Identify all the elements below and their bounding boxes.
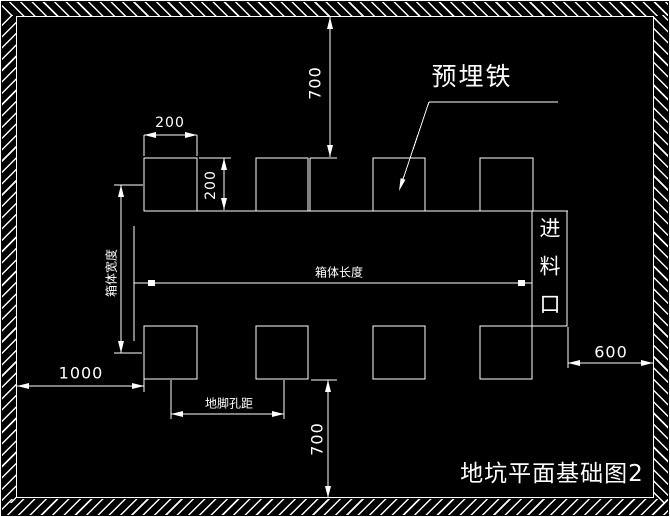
callout-embedded-iron: 预埋铁 [431,57,512,93]
foundation-pad [256,326,308,379]
dim-arrow-up [118,185,124,197]
foundation-pad [256,158,308,211]
foundation-pad [373,326,425,379]
dim-arrow-down [325,486,331,498]
foundation-pad [480,158,533,211]
dim-arrow-up [325,380,331,392]
dim-text-right-clearance: 600 [594,343,628,362]
foundation-pad [144,158,197,211]
dim-arrow-left [171,411,183,417]
dim-box-terminator [148,280,155,286]
dim-arrow-up [327,17,333,29]
dim-text-box-length: 箱体长度 [315,264,363,281]
drawing-title: 地坑平面基础图2 [460,454,644,488]
dim-arrow-up [221,158,227,170]
dim-text-box-width: 箱体宽度 [103,249,120,297]
dim-text-anchor-spacing: 地脚孔距 [205,395,253,412]
dim-arrow-right [185,132,197,138]
dim-arrow-down [118,341,124,353]
dim-arrow-right [641,360,653,366]
leader-arrowhead [399,178,405,191]
callout-leader [399,102,558,191]
drawing-geometry [1,1,670,517]
foundation-pad [480,326,532,379]
dim-arrow-down [327,145,333,157]
dim-pad-width [144,132,197,156]
feed-inlet-label: 进料口 [538,217,559,331]
foundation-pads-bottom-row [144,326,532,379]
dim-arrow-left [144,132,156,138]
dim-arrow-right [132,383,144,389]
foundation-pad [373,158,425,211]
dim-arrow-right [272,411,284,417]
foundation-pad [144,326,197,379]
cad-foundation-drawing: 200 200 700 700 1000 600 箱体长度 箱体宽度 地脚孔距 … [0,0,670,517]
dim-arrow-down [221,198,227,210]
dim-arrow-left [17,383,29,389]
dim-arrow-left [568,360,580,366]
dim-text-top-clearance: 700 [306,66,325,100]
dim-top-clearance [310,17,337,211]
dim-box-length [134,226,532,341]
dim-text-pad-height: 200 [203,170,219,200]
dim-text-pad-width: 200 [155,115,185,131]
dim-box-terminator [518,280,525,286]
dim-text-left-clearance: 1000 [59,364,104,383]
dim-text-bottom-clearance: 700 [308,422,327,456]
